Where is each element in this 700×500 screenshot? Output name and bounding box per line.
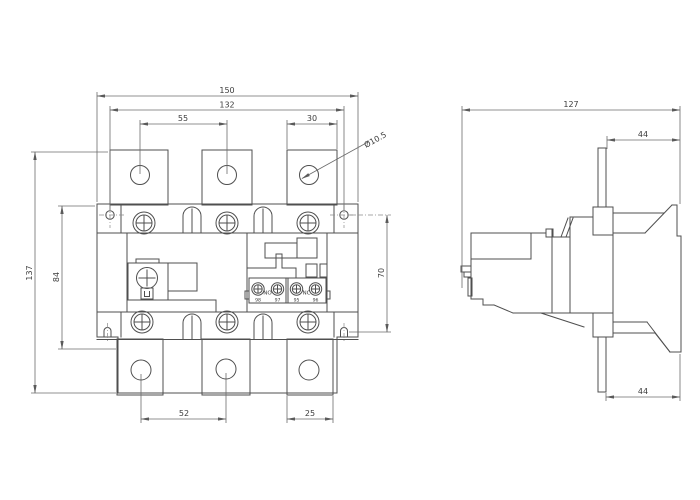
dim-overall-height: 137 [25, 265, 34, 280]
screw-icon [216, 212, 238, 234]
aux-no-label: NO [263, 291, 272, 297]
dim-bottom-blade-to-back: 44 [638, 387, 648, 396]
top-terminal-tabs [110, 150, 337, 205]
technical-drawing-sheet: 98 97 95 96 NO NC [0, 0, 700, 500]
dim-overall-depth: 127 [563, 100, 578, 109]
side-clip [461, 266, 471, 272]
screw-icon [216, 311, 238, 333]
screw-icon [297, 311, 319, 333]
side-center-body [541, 213, 613, 327]
bottom-blade-terminal [598, 337, 606, 392]
upper-mounting-strip [97, 204, 358, 234]
aux-terminal-97-label: 97 [275, 298, 281, 304]
bottom-terminal-tabs [117, 339, 333, 395]
screw-icon [131, 311, 153, 333]
aux-nc-label: NC [302, 291, 310, 297]
main-cover: 98 97 95 96 NO NC [127, 233, 330, 312]
lower-mounting-strip [97, 311, 358, 393]
dim-overall-width: 150 [219, 86, 234, 95]
screw-icon [297, 212, 319, 234]
side-left-block [461, 229, 593, 313]
dim-bottom-terminal-pitch: 52 [179, 409, 189, 418]
screw-icon [133, 212, 155, 234]
aux-terminal-95-label: 95 [294, 298, 300, 304]
dim-top-terminal-width: 30 [307, 114, 317, 123]
side-back-plate [613, 205, 681, 352]
top-blade-terminal [598, 148, 606, 207]
aux-screw-icon [271, 283, 283, 295]
front-view: 98 97 95 96 NO NC [25, 86, 391, 423]
aux-terminal-96-label: 96 [313, 298, 319, 304]
aux-screw-icon [309, 283, 321, 295]
side-view-dimensions: 127 44 44 [462, 100, 680, 401]
dim-mounting-hole-span: 132 [219, 101, 234, 110]
bottom-terminal-hole-3 [299, 360, 319, 380]
dim-right-mounting-height: 70 [377, 268, 386, 278]
side-view: 127 44 44 [461, 100, 681, 401]
front-view-dimensions: 150 132 55 30 Ø10.5 137 [25, 86, 391, 423]
relay-dimensional-drawing: 98 97 95 96 NO NC [0, 0, 700, 500]
aux-contact-strip: 98 97 95 96 NO NC [245, 278, 330, 304]
dim-top-blade-to-back: 44 [638, 130, 648, 139]
aux-screw-icon [290, 283, 302, 295]
reset-button-icon [141, 288, 153, 299]
aux-terminal-98-label: 98 [255, 298, 261, 304]
dim-hole-diameter: Ø10.5 [362, 129, 388, 149]
dim-left-inner-height: 84 [52, 272, 61, 282]
current-adjust-dial-icon [137, 268, 158, 289]
dim-bottom-terminal-width: 25 [305, 409, 315, 418]
dim-top-terminal-pitch: 55 [178, 114, 188, 123]
